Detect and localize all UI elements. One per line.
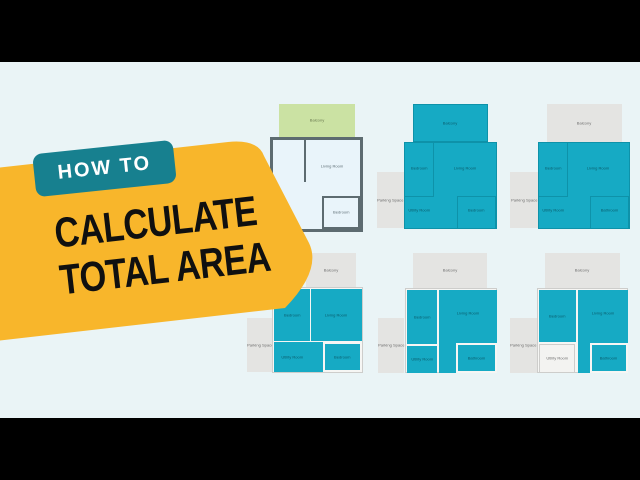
how-to-badge-label: HOW TO xyxy=(57,152,153,185)
letterbox-top xyxy=(0,0,640,62)
letterbox-bottom xyxy=(0,418,640,480)
thumbnail-canvas: Balcony Living Room Bedroom Parking Spac… xyxy=(0,0,640,480)
